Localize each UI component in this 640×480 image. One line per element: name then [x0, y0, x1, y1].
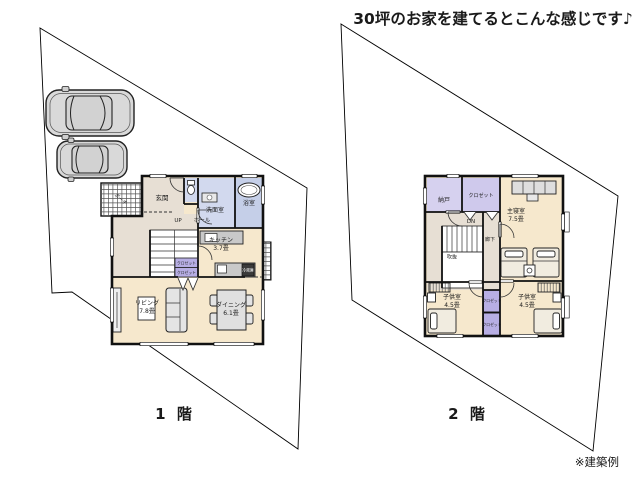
- hall-floor-left: [112, 228, 150, 277]
- floorplan-page: ポーチ クロゼット クロゼット 冷蔵庫: [0, 0, 640, 480]
- floorplan-canvas: ポーチ クロゼット クロゼット 冷蔵庫: [0, 0, 640, 480]
- storage-floor: [427, 178, 462, 212]
- desk-kids-left: [429, 283, 450, 292]
- floor2-plan: クロゼット クロゼット: [423, 174, 569, 337]
- kitchen-size-label: 3.7畳: [213, 245, 229, 252]
- desk-kids-right: [538, 283, 560, 292]
- bed-kids-right: [534, 309, 562, 333]
- washroom-label: 洗面室: [206, 206, 224, 214]
- closet-top-label: クロゼット: [468, 192, 493, 199]
- entrance-label: 玄関: [156, 193, 169, 202]
- car-small: [57, 138, 127, 182]
- closet-f2-b-label: クロゼット: [483, 322, 502, 327]
- closet-f1-a-label: クロゼット: [177, 261, 196, 266]
- stand-kids-right: [553, 293, 561, 302]
- closet-f1-a: クロゼット: [175, 258, 198, 268]
- closet-f1-b: クロゼット: [175, 268, 198, 278]
- sofa: [166, 288, 187, 332]
- master-bedroom-label: 主寝室: [507, 207, 525, 215]
- kids-right-door-gap: [501, 280, 514, 282]
- storage-label: 納戸: [438, 196, 450, 204]
- dining-label: ダイニング: [216, 301, 246, 309]
- kids-left-size-label: 4.5畳: [444, 302, 460, 309]
- washbasin-bowl: [207, 195, 212, 200]
- kids-right-label: 子供室: [518, 293, 536, 301]
- closet-f2-b: クロゼット: [483, 313, 502, 336]
- corridor-floor: [483, 212, 500, 290]
- kitchen-label: キッチン: [209, 237, 233, 244]
- kids-left-door-gap: [469, 281, 482, 283]
- void-label: 吹抜: [447, 254, 457, 261]
- bed-kids-left: [428, 309, 456, 333]
- corridor-label: 廊下: [485, 236, 495, 243]
- fridge-label: 冷蔵庫: [242, 268, 254, 273]
- closet-f2-a: クロゼット: [483, 290, 502, 312]
- closet-f1-b-label: クロゼット: [177, 270, 196, 275]
- bed-master-left: [501, 248, 527, 277]
- nightstand: [524, 265, 535, 276]
- dining-size-label: 6.1畳: [223, 310, 239, 317]
- kids-left-label: 子供室: [443, 293, 461, 301]
- living-label: リビング: [135, 299, 159, 307]
- closet-f2-a-label: クロゼット: [483, 298, 502, 303]
- stand-kids-left: [428, 293, 436, 302]
- page-title: 30坪のお家を建てるとこんな感じです♪: [353, 9, 632, 28]
- note-label: ※建築例: [575, 455, 619, 469]
- stairs-down-label: DN: [467, 219, 475, 225]
- kitchen-lower-unit: 冷蔵庫: [215, 263, 255, 277]
- toilet: [188, 181, 195, 195]
- floor1-caption: 1 階: [155, 405, 195, 423]
- floor1-plan: ポーチ クロゼット クロゼット 冷蔵庫: [101, 174, 271, 345]
- porch: ポーチ: [101, 183, 142, 216]
- living-size-label: 7.8畳: [139, 308, 155, 315]
- car-large: [46, 87, 134, 140]
- bed-master-right: [533, 248, 559, 277]
- bath-label: 浴室: [243, 199, 255, 207]
- stairs-up-label: UP: [174, 218, 182, 224]
- tv-board: [113, 288, 121, 332]
- hall-label: ホール: [194, 217, 211, 224]
- floor2-caption: 2 階: [448, 405, 488, 423]
- master-bedroom-size-label: 7.5畳: [508, 216, 524, 223]
- kids-right-size-label: 4.5畳: [519, 302, 535, 309]
